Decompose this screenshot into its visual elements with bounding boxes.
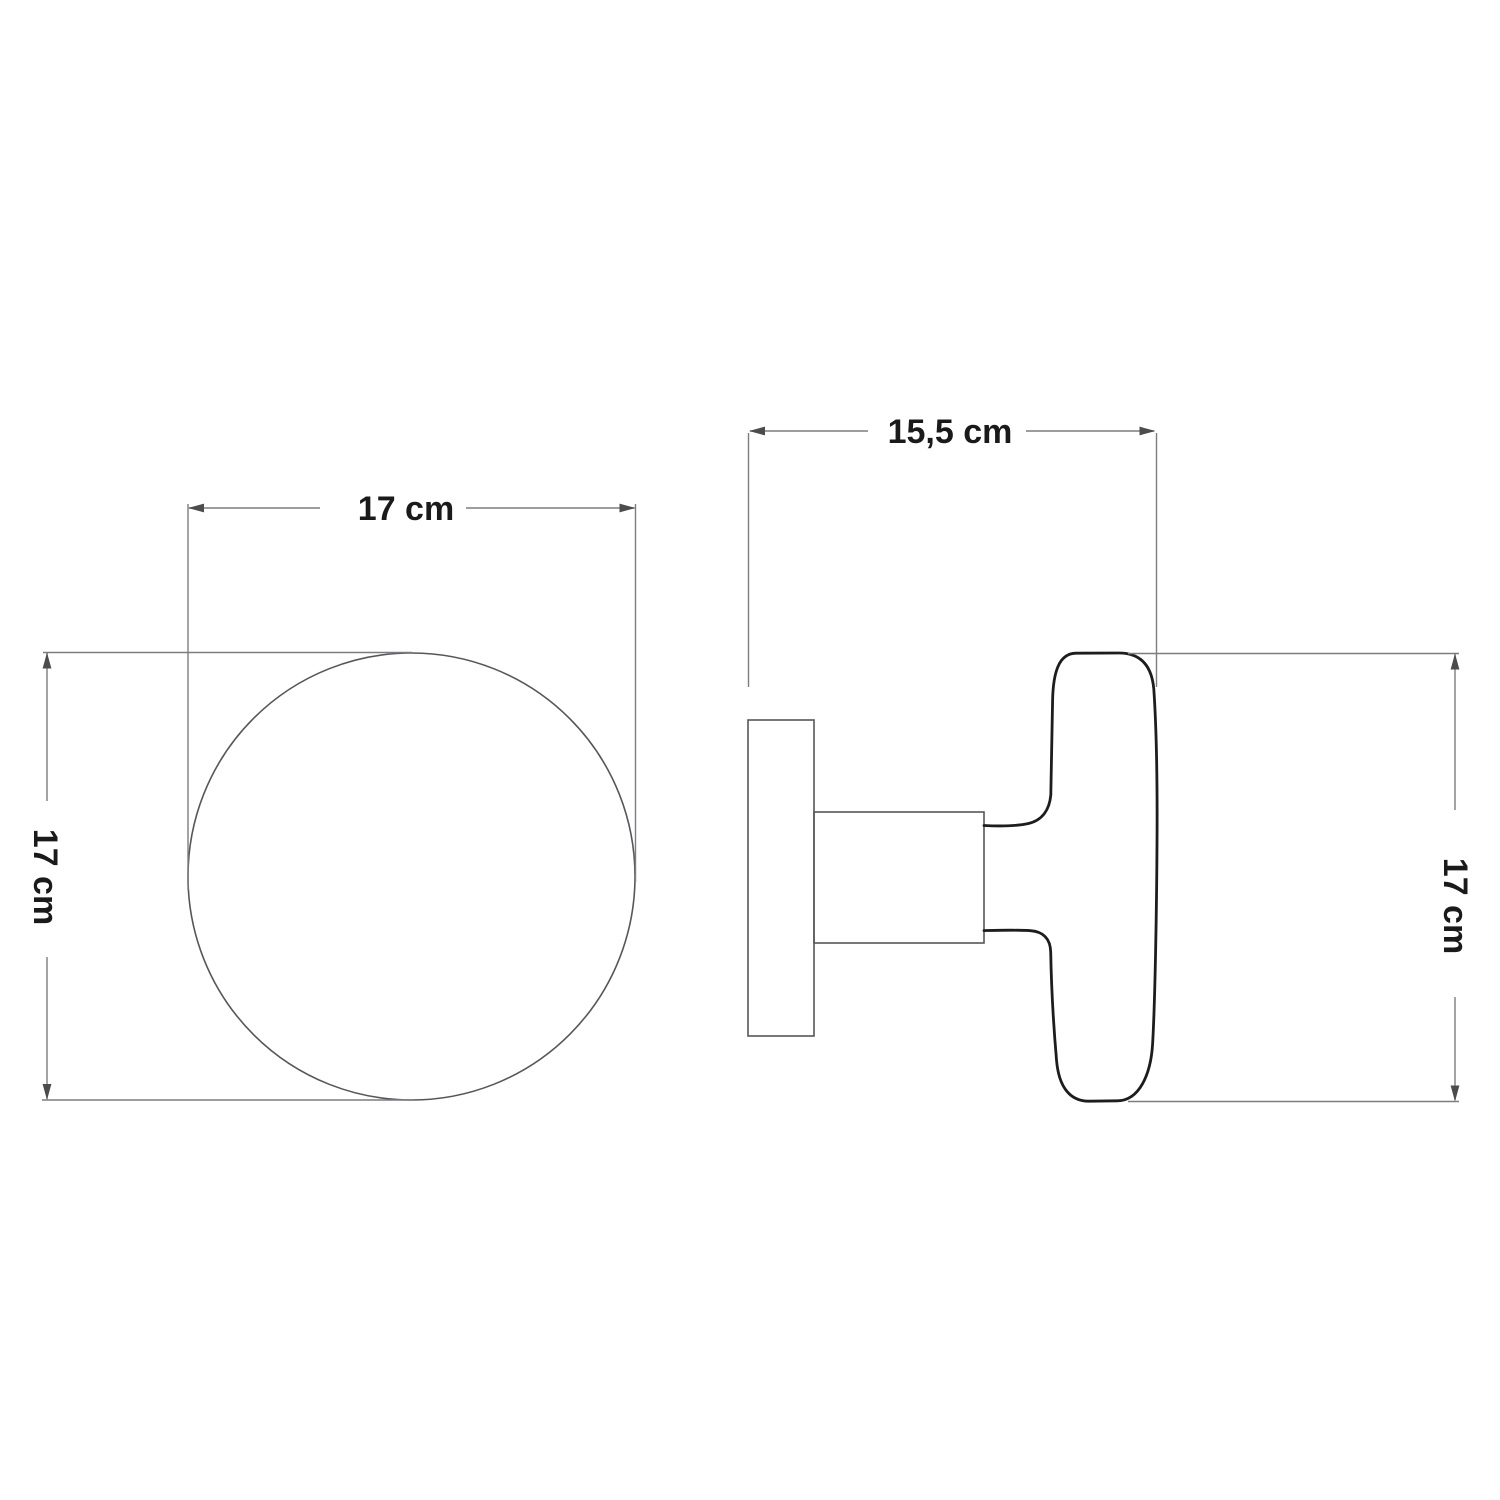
front-width-label: 17 cm [358, 490, 454, 528]
arrowhead-right-icon [620, 504, 636, 513]
knob-stem [814, 812, 984, 943]
arrowhead-left-icon [749, 427, 765, 436]
arrowhead-up-icon [43, 653, 52, 669]
technical-drawing-page: 17 cm 17 cm [0, 0, 1500, 1500]
knob-front-circle [188, 653, 635, 1100]
front-view: 17 cm 17 cm [26, 490, 636, 1100]
side-view: 15,5 cm 17 cm [748, 413, 1474, 1102]
knob-head-profile [984, 653, 1157, 1101]
arrowhead-left-icon [188, 504, 204, 513]
front-height-dimension [42, 653, 414, 1101]
front-width-dimension [188, 504, 636, 890]
side-height-dimension [1128, 654, 1459, 1102]
arrowhead-down-icon [43, 1084, 52, 1100]
dimension-drawing-canvas: 17 cm 17 cm [0, 0, 1500, 1500]
side-width-dimension [749, 427, 1157, 687]
arrowhead-right-icon [1140, 427, 1156, 436]
arrowhead-up-icon [1451, 654, 1460, 670]
side-height-label: 17 cm [1436, 858, 1474, 954]
front-height-label: 17 cm [26, 829, 64, 925]
arrowhead-down-icon [1451, 1086, 1460, 1102]
side-width-label: 15,5 cm [888, 413, 1013, 451]
mounting-plate [748, 720, 814, 1036]
